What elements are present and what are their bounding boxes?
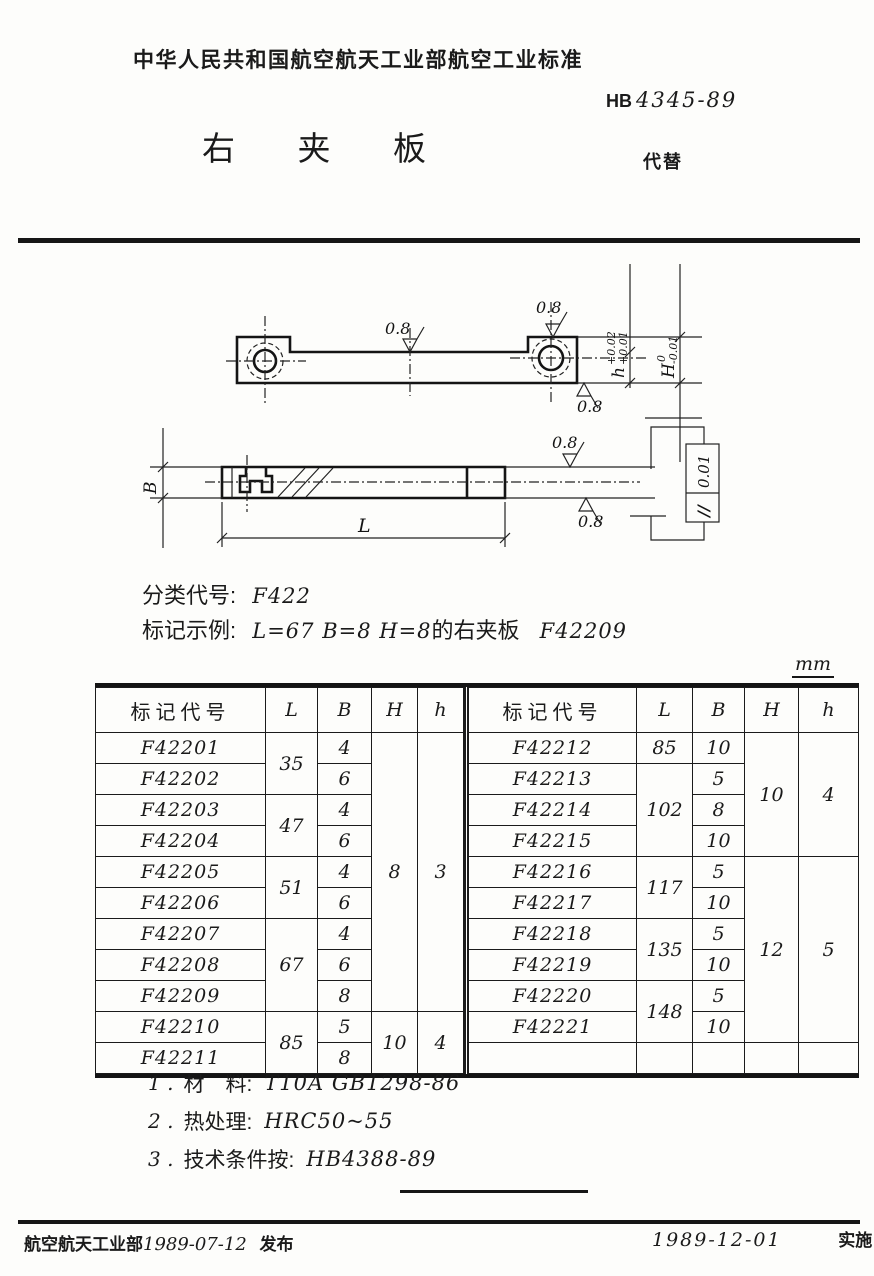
- spec-value-cell: 10: [745, 733, 799, 857]
- spec-value-cell: 47: [266, 795, 318, 857]
- spec-value-cell: 6: [318, 950, 372, 981]
- spec-value-cell: 5: [693, 981, 745, 1012]
- column-header: H: [372, 688, 418, 733]
- finish-value: 0.8: [577, 397, 602, 416]
- parallel-symbol-icon: //: [694, 503, 713, 519]
- top-rule: [18, 238, 860, 243]
- spec-code-cell: F42205: [96, 857, 266, 888]
- page-title: 右 夹 板: [202, 122, 452, 170]
- spec-value-cell: [799, 1043, 859, 1074]
- note-number: 2 .: [148, 1109, 173, 1133]
- spec-value-cell: 4: [318, 919, 372, 950]
- column-header: H: [745, 688, 799, 733]
- spec-value-cell: 51: [266, 857, 318, 919]
- spec-value-cell: 67: [266, 919, 318, 1012]
- spec-code-cell: F42219: [467, 950, 637, 981]
- spec-value-cell: 5: [799, 857, 859, 1043]
- standard-document-page: 中华人民共和国航空航天工业部航空工业标准 HB4345-89 右 夹 板 代替 …: [0, 0, 874, 1276]
- spec-value-cell: 8: [693, 795, 745, 826]
- spec-code-cell: F42214: [467, 795, 637, 826]
- spec-value-cell: 8: [372, 733, 418, 1012]
- replaces-label: 代替: [643, 148, 683, 174]
- spec-value-cell: 6: [318, 764, 372, 795]
- dim-h: h: [609, 367, 629, 378]
- tolerance-value: 0.01: [695, 455, 713, 488]
- spec-code-cell: F42207: [96, 919, 266, 950]
- spec-code-cell: F42206: [96, 888, 266, 919]
- issue-date: 1989-07-12: [143, 1234, 247, 1255]
- note-value: T10A GB1298-86: [264, 1071, 460, 1095]
- spec-code-cell: F42221: [467, 1012, 637, 1043]
- spec-value-cell: [693, 1043, 745, 1074]
- spec-value-cell: 4: [318, 733, 372, 764]
- classification-label: 分类代号:: [142, 583, 236, 608]
- spec-value-cell: 4: [799, 733, 859, 857]
- spec-value-cell: 5: [693, 919, 745, 950]
- spec-value-cell: [637, 1043, 693, 1074]
- mid-rule: [400, 1190, 588, 1193]
- spec-value-cell: 5: [693, 857, 745, 888]
- spec-value-cell: 6: [318, 826, 372, 857]
- parallelism-tolerance: 0.01 //: [630, 427, 719, 540]
- column-header: h: [799, 688, 859, 733]
- spec-value-cell: 35: [266, 733, 318, 795]
- note-label: 技术条件按:: [183, 1144, 294, 1174]
- spec-code-cell: F42217: [467, 888, 637, 919]
- marking-example-dims: L=67 B=8 H=8: [252, 619, 431, 643]
- note-number: 1 .: [148, 1071, 173, 1095]
- classification-value: F422: [252, 584, 311, 608]
- H-dimension-label: H 0 -0.01: [655, 336, 680, 379]
- spec-table-left: 标记代号LBHhF4220135483F422026F42203474F4220…: [95, 687, 464, 1074]
- finish-value: 0.8: [385, 319, 410, 338]
- spec-table: 标记代号LBHhF4220135483F422026F42203474F4220…: [95, 683, 859, 1078]
- spec-code-cell: F42213: [467, 764, 637, 795]
- column-header: L: [637, 688, 693, 733]
- surface-finish-mark: 0.8: [578, 498, 603, 531]
- column-header: B: [693, 688, 745, 733]
- note-material: 1 . 材 料: T10A GB1298-86: [148, 1064, 460, 1102]
- spec-value-cell: 12: [745, 857, 799, 1043]
- spec-value-cell: 10: [693, 888, 745, 919]
- marking-example-line: 标记示例: L=67 B=8 H=8的右夹板 F42209: [142, 613, 627, 645]
- surface-finish-mark: 0.8: [552, 433, 584, 467]
- spec-value-cell: 5: [318, 1012, 372, 1043]
- spec-value-cell: 10: [693, 950, 745, 981]
- standard-org-title: 中华人民共和国航空航天工业部航空工业标准: [133, 44, 583, 74]
- footer-rule: [18, 1220, 860, 1224]
- spec-code-cell: F42202: [96, 764, 266, 795]
- spec-code-cell: F42203: [96, 795, 266, 826]
- spec-table-right: 标记代号LBHhF422128510104F422131025F422148F4…: [464, 687, 859, 1074]
- B-dimension-label: B: [141, 482, 161, 496]
- finish-value: 0.8: [552, 433, 577, 452]
- spec-value-cell: 10: [693, 1012, 745, 1043]
- spec-code-cell: F42210: [96, 1012, 266, 1043]
- standard-number: HB4345-89: [606, 88, 737, 112]
- h-dimension-label: h +0.02 +0.01: [605, 331, 630, 378]
- note-value: HB4388-89: [306, 1147, 436, 1171]
- standard-prefix: HB: [606, 91, 632, 111]
- note-heat-treatment: 2 . 热处理: HRC50~55: [148, 1102, 460, 1140]
- spec-value-cell: 5: [693, 764, 745, 795]
- surface-finish-mark: 0.8: [536, 298, 567, 337]
- spec-value-cell: 117: [637, 857, 693, 919]
- marking-example-label: 标记示例:: [142, 618, 236, 643]
- spec-value-cell: 102: [637, 764, 693, 857]
- side-view: B L 0.8 0.8: [141, 427, 719, 548]
- standard-code: 4345-89: [636, 88, 737, 112]
- column-header: 标记代号: [467, 688, 637, 733]
- note-number: 3 .: [148, 1147, 173, 1171]
- t-slot-section: [240, 467, 272, 492]
- spec-value-cell: 8: [318, 981, 372, 1012]
- spec-value-cell: 10: [693, 826, 745, 857]
- classification-line: 分类代号: F422: [142, 578, 311, 610]
- spec-code-cell: F42212: [467, 733, 637, 764]
- dim-H-tol-lower: -0.01: [667, 336, 680, 364]
- spec-code-cell: F42218: [467, 919, 637, 950]
- column-header: h: [418, 688, 464, 733]
- spec-value-cell: 4: [318, 795, 372, 826]
- spec-code-cell: F42215: [467, 826, 637, 857]
- unit-label: mm: [792, 653, 834, 678]
- column-header: 标记代号: [96, 688, 266, 733]
- column-header: B: [318, 688, 372, 733]
- note-value: HRC50~55: [264, 1109, 393, 1133]
- dim-L: L: [357, 515, 371, 537]
- footer-issue: 航空航天工业部1989-07-12 发布: [24, 1230, 294, 1255]
- spec-value-cell: 3: [418, 733, 464, 1012]
- finish-value: 0.8: [536, 298, 561, 317]
- spec-code-cell: F42220: [467, 981, 637, 1012]
- spec-code-cell: F42209: [96, 981, 266, 1012]
- spec-value-cell: 6: [318, 888, 372, 919]
- top-view-outline: [237, 337, 577, 383]
- notes-section: 1 . 材 料: T10A GB1298-86 2 . 热处理: HRC50~5…: [148, 1064, 460, 1178]
- spec-value-cell: 85: [637, 733, 693, 764]
- note-label: 热处理:: [183, 1106, 252, 1136]
- note-tech-conditions: 3 . 技术条件按: HB4388-89: [148, 1140, 460, 1178]
- dim-B: B: [141, 482, 161, 496]
- marking-example-code: F42209: [540, 619, 627, 643]
- spec-value-cell: 135: [637, 919, 693, 981]
- finish-value: 0.8: [578, 512, 603, 531]
- spec-code-cell: F42216: [467, 857, 637, 888]
- issue-label: 发布: [260, 1235, 294, 1254]
- spec-code-cell: F42204: [96, 826, 266, 857]
- surface-finish-mark: 0.8: [385, 319, 424, 352]
- spec-value-cell: 10: [693, 733, 745, 764]
- impl-label: 实施: [838, 1231, 872, 1250]
- spec-value-cell: [745, 1043, 799, 1074]
- spec-code-cell: F42208: [96, 950, 266, 981]
- note-label: 材 料:: [183, 1068, 252, 1098]
- footer-implementation: 1989-12-01 实施: [652, 1226, 872, 1251]
- issue-org: 航空航天工业部: [24, 1235, 143, 1254]
- dim-h-tol-lower: +0.01: [617, 331, 630, 365]
- marking-example-mid: 的右夹板: [432, 618, 520, 643]
- surface-finish-mark: 0.8: [577, 383, 602, 416]
- spec-code-cell: [467, 1043, 637, 1074]
- spec-value-cell: 148: [637, 981, 693, 1043]
- column-header: L: [266, 688, 318, 733]
- technical-drawing: 0.8 0.8 0.8 h +0.02 +0.01: [0, 250, 874, 580]
- spec-code-cell: F42201: [96, 733, 266, 764]
- spec-value-cell: 4: [318, 857, 372, 888]
- top-view: 0.8 0.8 0.8 h +0.02 +0.01: [226, 264, 702, 462]
- impl-date: 1989-12-01: [652, 1229, 782, 1251]
